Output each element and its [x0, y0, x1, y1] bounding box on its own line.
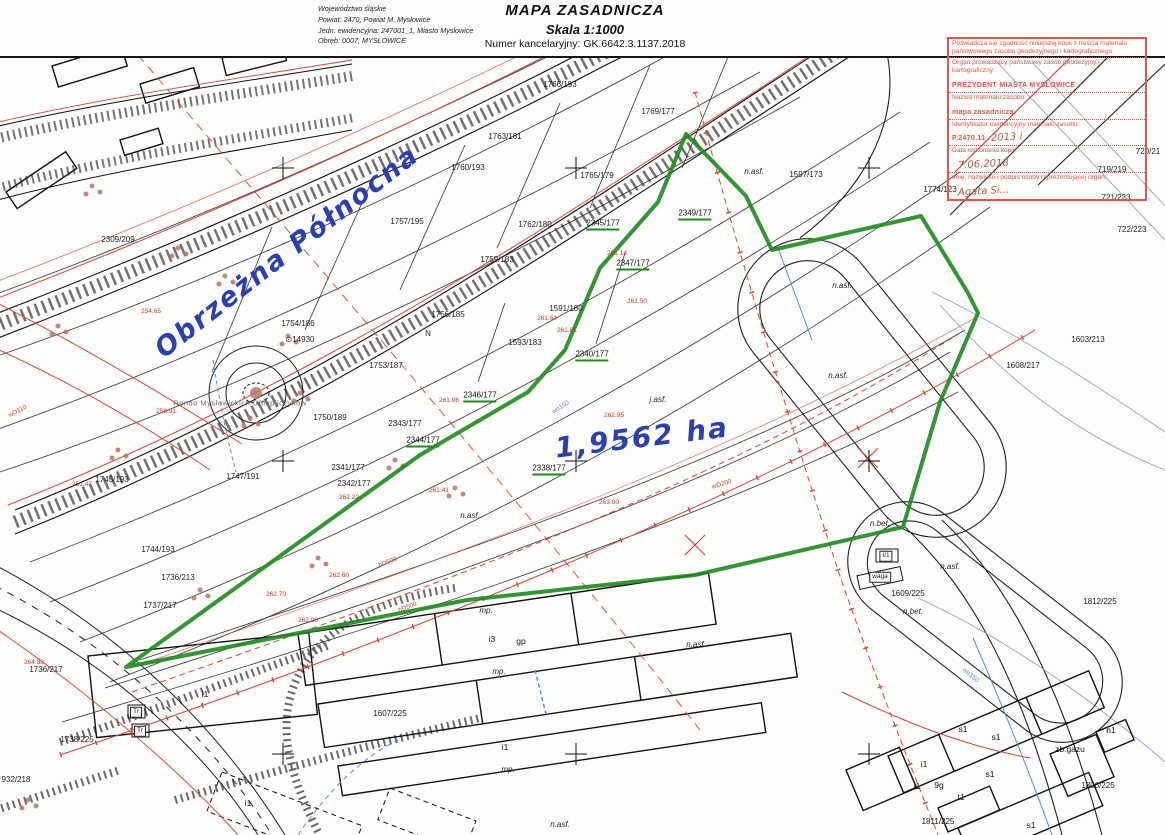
map-label: n.asf. — [828, 372, 848, 380]
map-label: 1597/173 — [789, 171, 822, 179]
map-label: 2343/177 — [388, 420, 421, 428]
map-label: 1609/225 — [891, 590, 924, 598]
map-label: 262.95 — [604, 413, 624, 420]
map-label: 1603/213 — [1071, 336, 1104, 344]
stamp-row: Identyfikator ewidencyjny materiału zaso… — [949, 120, 1145, 147]
map-label: 263.00 — [599, 500, 619, 507]
map-scale: Skala 1:1000 — [400, 22, 770, 37]
map-label: 1762/180 — [518, 221, 551, 229]
map-label: s1 — [992, 733, 1001, 742]
map-label: i3 — [489, 635, 496, 644]
map-label: i1 — [502, 743, 509, 752]
map-label: 261.61 — [557, 328, 577, 335]
map-label: 2345/177 — [586, 220, 619, 231]
stamp-row: Poświadcza się zgodność niniejszej kopii… — [949, 39, 1145, 58]
map-label: 1757/195 — [390, 218, 423, 226]
map-label: 2349/177 — [678, 210, 711, 221]
map-label: 1608/217 — [1006, 362, 1039, 370]
map-label: 1738/225 — [60, 736, 93, 744]
stamp-row: Imię, nazwisko i podpis osoby reprezentu… — [949, 173, 1145, 199]
map-label: 1766/193 — [543, 81, 576, 89]
map-label: 262.70 — [266, 592, 286, 599]
map-label: i1 — [921, 760, 928, 769]
map-label: 1744/193 — [141, 546, 174, 554]
map-label: 1756/185 — [431, 311, 464, 319]
map-label: 2342/177 — [337, 480, 370, 488]
map-label: 1769/177 — [641, 108, 674, 116]
map-label: 1759/183 — [480, 256, 513, 264]
map-label: 1745/193 — [95, 476, 128, 484]
map-label: s1 — [986, 770, 995, 779]
map-label: 1736/213 — [161, 574, 194, 582]
map-label: 2309/209 — [101, 236, 134, 244]
map-label: 258.91 — [156, 409, 176, 416]
map-label: Tr — [130, 707, 142, 718]
map-label: mp. — [479, 607, 492, 615]
map-label: 261.50 — [627, 299, 647, 306]
map-label: 2338/177 — [532, 465, 565, 476]
stamp-rows: Poświadcza się zgodność niniejszej kopii… — [949, 39, 1145, 199]
map-label: 1754/186 — [281, 320, 314, 328]
map-label: 262.60 — [329, 573, 349, 580]
map-label: wD110 — [8, 404, 29, 419]
map-label: wD200 — [711, 479, 732, 491]
stamp-row: Data wykonania kopii:7.06.2018 — [949, 146, 1145, 173]
map-label: 261.96 — [439, 398, 459, 405]
map-label: 1753/187 — [369, 362, 402, 370]
map-label: Tr — [134, 726, 146, 737]
map-label: n.asf. — [686, 641, 706, 649]
map-label: wo150 — [961, 667, 980, 684]
map-label: i1 — [245, 799, 252, 808]
map-label: wo160 — [551, 400, 571, 416]
map-label: 1736/217 — [29, 666, 62, 674]
map-label: 2340/177 — [575, 351, 608, 362]
map-label: n.asf. — [744, 168, 764, 176]
map-label: 1811/225 — [922, 818, 955, 826]
map-label: s1 — [959, 725, 968, 734]
area-annotation: 1,9562 ha — [554, 413, 731, 462]
street-name-annotation: Obrzeżna Północna — [150, 141, 423, 363]
map-label: 251.47 — [72, 482, 92, 489]
map-label: 262.22 — [339, 495, 359, 502]
map-label: 1591/180 — [549, 305, 582, 313]
map-label: 1607/225 — [373, 710, 406, 718]
map-label: 1747/191 — [226, 473, 259, 481]
map-label: h1 — [1106, 726, 1115, 735]
map-label: waga — [869, 572, 891, 583]
map-label: 1765/179 — [580, 172, 613, 180]
map-label: 2346/177 — [463, 392, 496, 403]
map-label: j.asf. — [650, 396, 667, 404]
map-label: 722/223 — [1118, 226, 1147, 234]
map-label: 1750/189 — [313, 414, 346, 422]
map-label: 9g — [934, 781, 943, 790]
map-label: mp. — [501, 766, 514, 774]
map-label: zb.gazu — [1055, 745, 1085, 754]
map-label: 1593/183 — [508, 339, 541, 347]
map-label: mp. — [492, 668, 505, 676]
map-label: Rondo Mysłowickich Olimpijczyków — [173, 399, 307, 407]
map-label: 261.64 — [537, 316, 557, 323]
map-label: hD500 — [378, 556, 398, 569]
map-label: n.bet. — [870, 520, 890, 528]
map-label: N — [425, 330, 431, 338]
map-label: n.asf. — [550, 821, 570, 829]
map-label: gp — [516, 637, 525, 646]
map-label: i1 — [914, 782, 921, 791]
map-label: hD500 — [398, 601, 418, 614]
map-label: 1760/193 — [451, 164, 484, 172]
map-label: n.bet. — [903, 608, 923, 616]
map-label: ⊙14930 — [286, 336, 315, 344]
header-title-block: MAPA ZASADNICZA Skala 1:1000 Numer kance… — [400, 2, 770, 50]
map-label: 1763/181 — [488, 133, 521, 141]
map-label: i1 — [202, 690, 209, 699]
stamp-row: Organ prowadzący państwowy zasób geodezy… — [949, 58, 1145, 93]
map-label: I/1 — [879, 551, 892, 562]
cadastral-map-page: 2309/2091766/1931769/1771763/1811760/193… — [0, 0, 1165, 835]
map-label: t1 — [957, 793, 964, 802]
map-label: 2341/177 — [331, 464, 364, 472]
map-label: 261.41 — [429, 488, 449, 495]
map-label: 932/218 — [2, 776, 31, 784]
map-label: 2344/177 — [406, 437, 439, 448]
map-label: s1 — [1027, 821, 1036, 830]
certification-stamp: Poświadcza się zgodność niniejszej kopii… — [947, 37, 1147, 201]
map-label: 2347/177 — [616, 260, 649, 271]
registry-number: Numer kancelaryjny: GK.6642.3.1137.2018 — [400, 38, 770, 50]
map-label: 1737/217 — [143, 602, 176, 610]
map-title: MAPA ZASADNICZA — [400, 2, 770, 19]
map-label: n.asf. — [940, 563, 960, 571]
stamp-row: Nazwa materiału zasobu:mapa zasadnicza — [949, 93, 1145, 120]
map-label: 264.88 — [24, 660, 44, 667]
map-label: 1812/225 — [1083, 598, 1116, 606]
map-label: n.asf. — [832, 282, 852, 290]
map-label: 254.65 — [141, 309, 161, 316]
map-label: 1806/225 — [1081, 782, 1114, 790]
map-label: n.asf. — [460, 512, 480, 520]
map-label: 262.90 — [298, 618, 318, 625]
map-label: 261.14 — [607, 251, 627, 258]
